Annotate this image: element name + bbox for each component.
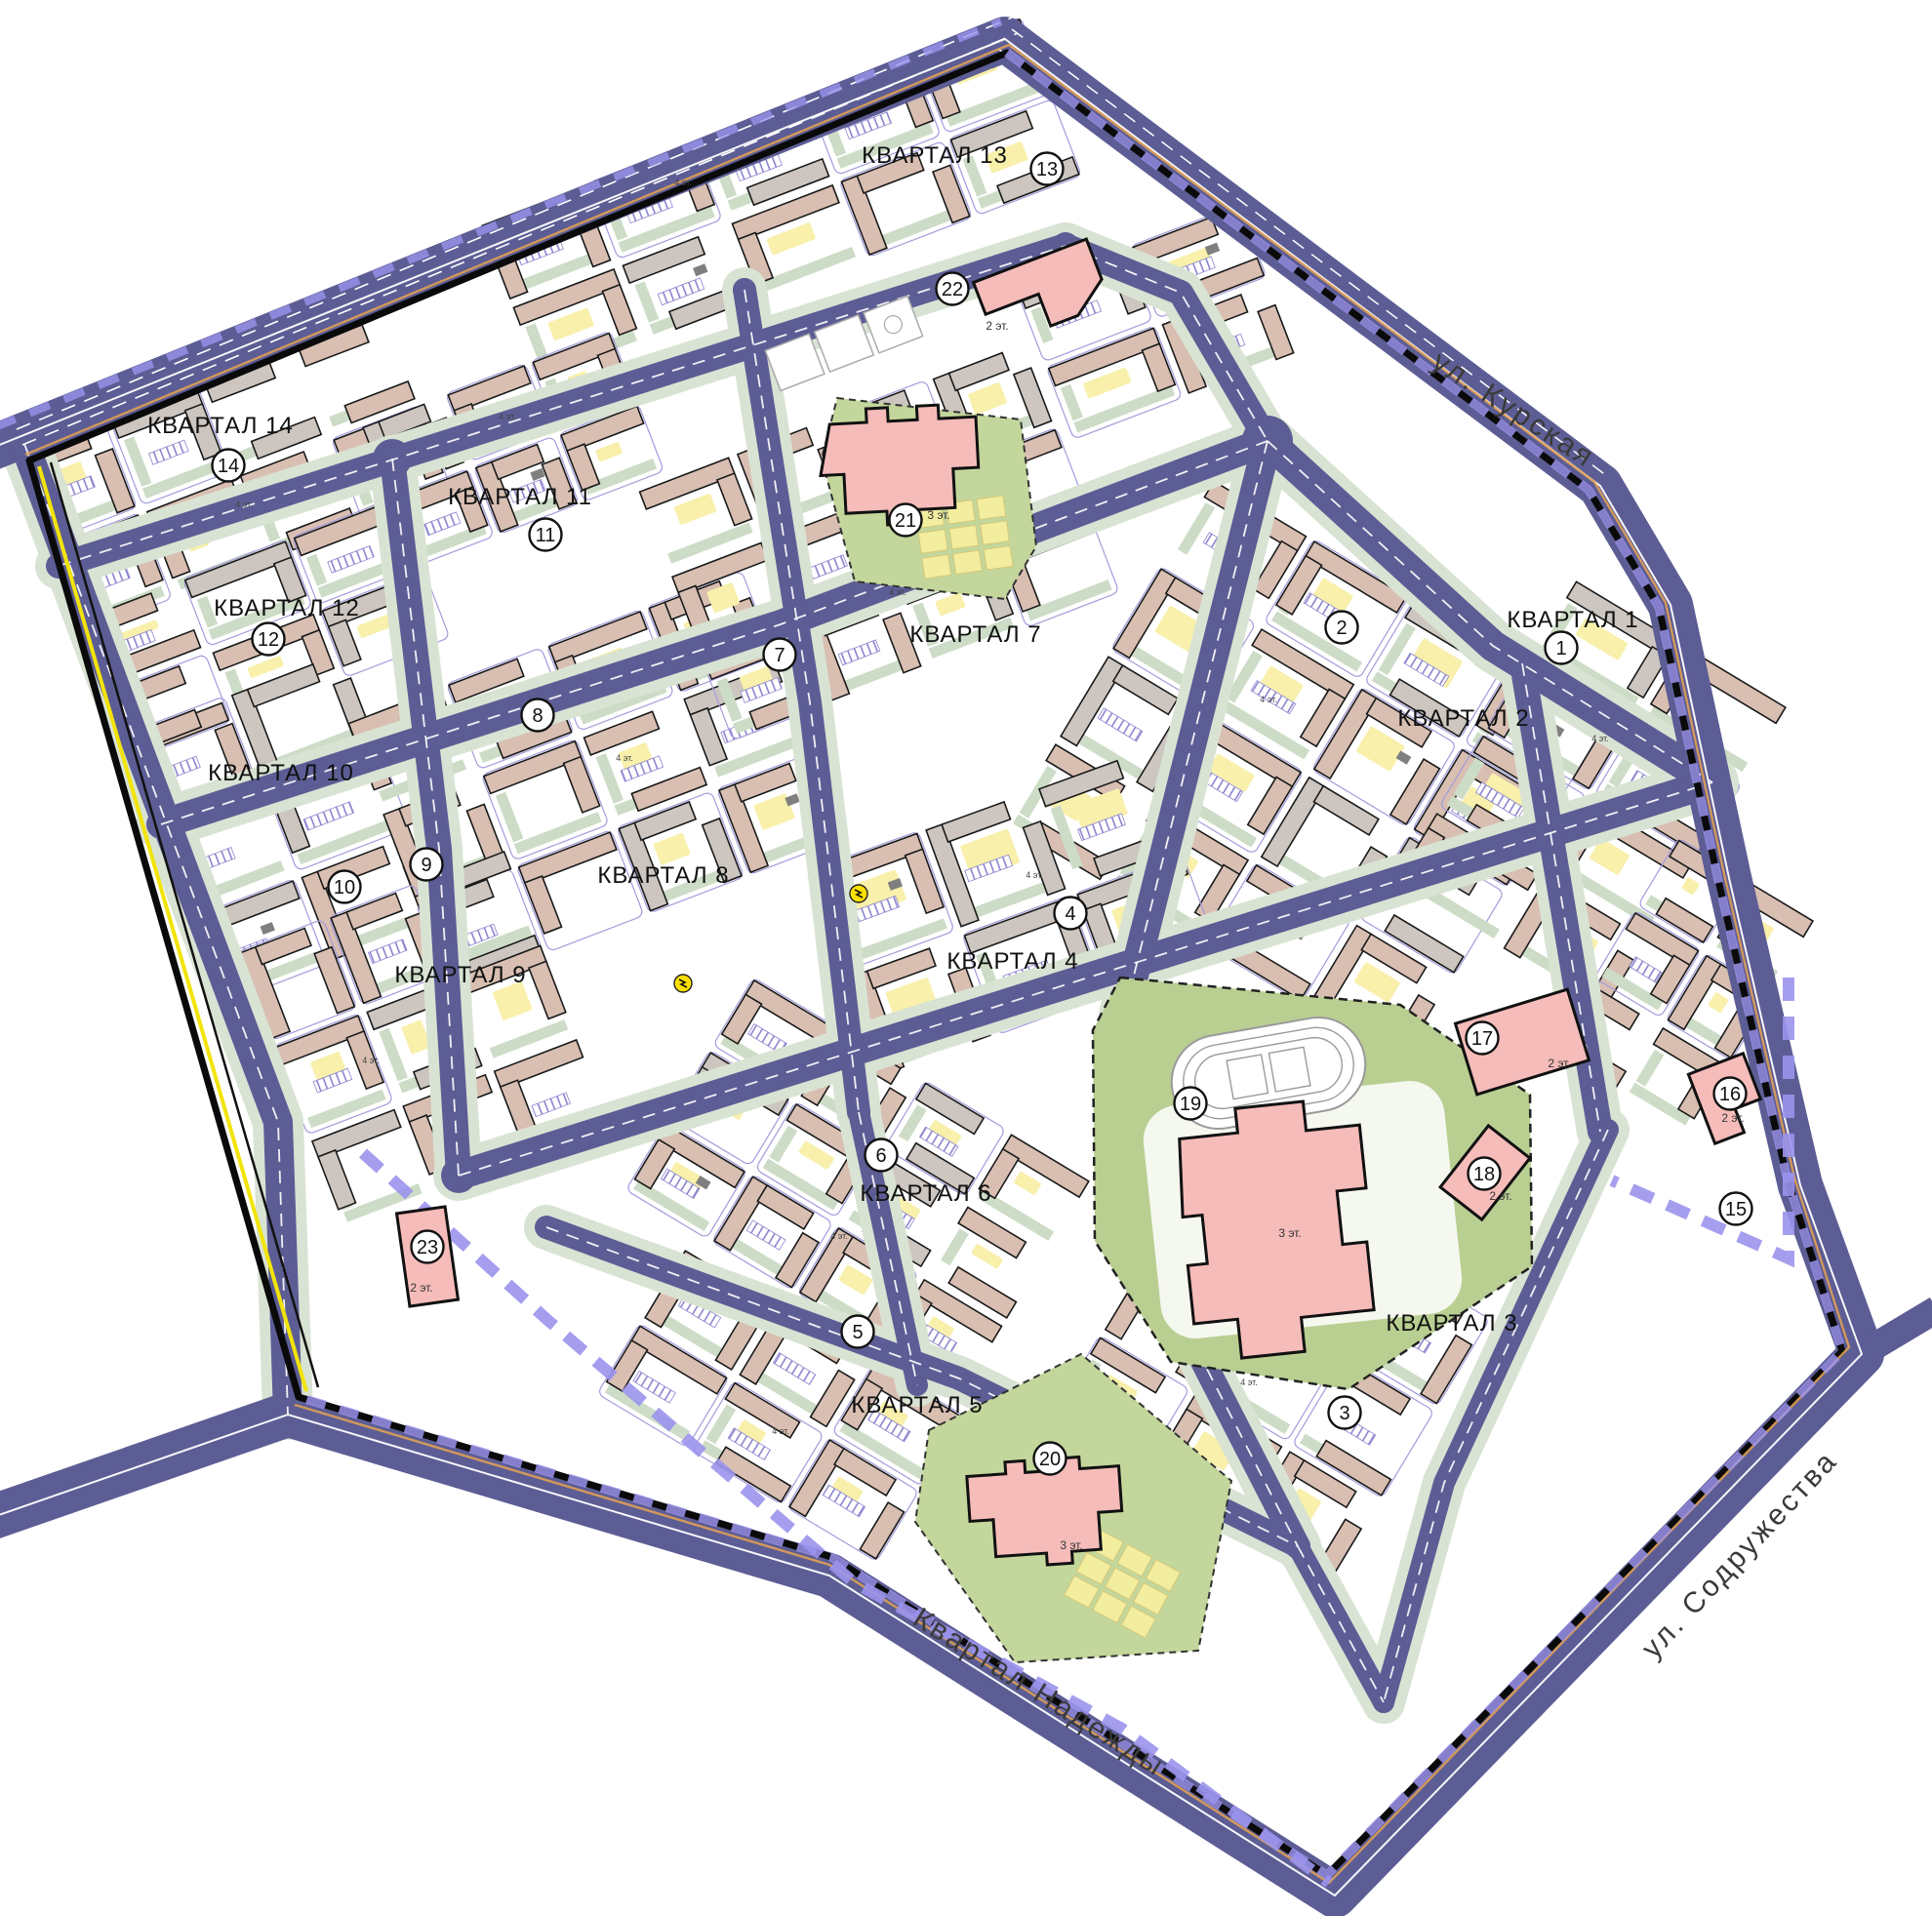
road-warning-sign	[674, 975, 692, 992]
building-floors-note: 3 эт.	[1060, 1538, 1082, 1552]
numbered-object-marker: 3	[1329, 1397, 1361, 1429]
marker-number: 17	[1471, 1028, 1493, 1050]
road-warning-sign	[850, 885, 867, 902]
marker-number: 7	[774, 645, 785, 666]
building-floors-note: 3 эт.	[1278, 1226, 1301, 1240]
marker-number: 20	[1039, 1449, 1061, 1470]
building-floor-tag: 4 эт.	[772, 1426, 789, 1436]
quarter-label: КВАРТАЛ 7	[909, 621, 1041, 648]
numbered-object-marker: 19	[1175, 1088, 1207, 1120]
marker-number: 22	[942, 279, 963, 300]
numbered-object-marker: 17	[1467, 1022, 1499, 1055]
quarter-label: КВАРТАЛ 9	[394, 962, 526, 988]
marker-number: 3	[1339, 1403, 1349, 1424]
quarter-label: КВАРТАЛ 8	[597, 862, 729, 889]
building-floor-tag: 4 эт.	[674, 178, 692, 187]
quarter-label: КВАРТАЛ 1	[1507, 607, 1638, 633]
marker-number: 10	[334, 877, 355, 898]
marker-number: 16	[1719, 1084, 1741, 1105]
numbered-object-marker: 15	[1720, 1193, 1752, 1225]
numbered-object-marker: 13	[1031, 153, 1064, 185]
marker-number: 6	[875, 1145, 886, 1167]
numbered-object-marker: 1	[1546, 632, 1578, 664]
numbered-object-marker: 14	[213, 450, 245, 482]
quarter-label: КВАРТАЛ 12	[214, 595, 360, 621]
building-floors-note: 2 эт.	[1721, 1111, 1744, 1125]
marker-number: 9	[421, 855, 431, 876]
marker-number: 13	[1036, 159, 1058, 180]
building-floor-tag: 4 эт.	[1026, 870, 1043, 880]
building-floor-tag: 4 эт.	[1240, 1377, 1258, 1387]
building-floors-note: 2 эт.	[1489, 1189, 1511, 1203]
building-floors-note: 3 эт.	[927, 508, 949, 522]
marker-number: 12	[258, 629, 279, 651]
numbered-object-marker: 12	[253, 623, 285, 656]
quarter-label: КВАРТАЛ 13	[862, 142, 1008, 169]
quarter-label: КВАРТАЛ 11	[448, 484, 592, 510]
numbered-object-marker: 11	[530, 519, 562, 551]
numbered-object-marker: 23	[412, 1231, 444, 1263]
numbered-object-marker: 18	[1469, 1158, 1501, 1190]
numbered-object-marker: 16	[1714, 1078, 1747, 1110]
quarter-label: КВАРТАЛ 2	[1397, 705, 1529, 732]
masterplan-map: 4 эт.4 эт.4 эт.4 эт.4 эт.4 эт.4 эт.4 эт.…	[0, 0, 1932, 1916]
marker-number: 14	[218, 456, 239, 477]
quarter-label: КВАРТАЛ 4	[946, 948, 1078, 975]
building-floors-note: 2 эт.	[1548, 1057, 1570, 1070]
numbered-object-marker: 4	[1055, 898, 1087, 930]
marker-number: 2	[1336, 618, 1347, 639]
quarter-label: КВАРТАЛ 14	[147, 413, 294, 439]
masterplan-svg: 4 эт.4 эт.4 эт.4 эт.4 эт.4 эт.4 эт.4 эт.…	[0, 0, 1932, 1916]
marker-number: 18	[1473, 1164, 1495, 1185]
building-floor-tag: 4 эт.	[830, 1231, 848, 1241]
building-floor-tag: 4 эт.	[1591, 734, 1609, 743]
building-floor-tag: 4 эт.	[889, 587, 906, 597]
numbered-object-marker: 21	[890, 504, 922, 537]
numbered-object-marker: 8	[522, 699, 554, 732]
numbered-object-marker: 2	[1326, 612, 1358, 644]
marker-number: 19	[1180, 1094, 1201, 1115]
numbered-object-marker: 22	[937, 273, 969, 305]
numbered-object-marker: 10	[329, 871, 361, 903]
quarter-label: КВАРТАЛ 10	[208, 760, 354, 786]
building-floor-tag: 4 эт.	[616, 753, 633, 763]
building-floors-note: 2 эт.	[410, 1281, 432, 1295]
marker-number: 11	[536, 525, 556, 546]
numbered-object-marker: 7	[764, 639, 796, 671]
building-floor-tag: 4 эт.	[499, 412, 516, 421]
quarter-label: КВАРТАЛ 6	[860, 1180, 991, 1207]
building-floor-tag: 4 эт.	[1260, 695, 1277, 704]
marker-number: 23	[417, 1237, 438, 1258]
marker-number: 15	[1725, 1199, 1747, 1220]
marker-number: 1	[1555, 638, 1566, 659]
marker-number: 5	[852, 1322, 863, 1343]
numbered-object-marker: 9	[411, 849, 443, 881]
numbered-object-marker: 5	[842, 1316, 874, 1348]
street-name-label: ул. Курская	[1427, 345, 1601, 474]
numbered-object-marker: 20	[1034, 1443, 1067, 1475]
marker-number: 21	[895, 510, 916, 532]
marker-number: 8	[532, 705, 543, 727]
building-floors-note: 2 эт.	[986, 319, 1008, 333]
marker-number: 4	[1065, 903, 1075, 925]
building-floor-tag: 4 эт.	[362, 1056, 380, 1065]
building-floor-tag: 4 эт.	[235, 499, 253, 509]
quarter-label: КВАРТАЛ 5	[851, 1392, 983, 1418]
numbered-object-marker: 6	[865, 1139, 898, 1172]
quarter-label: КВАРТАЛ 3	[1386, 1310, 1517, 1337]
